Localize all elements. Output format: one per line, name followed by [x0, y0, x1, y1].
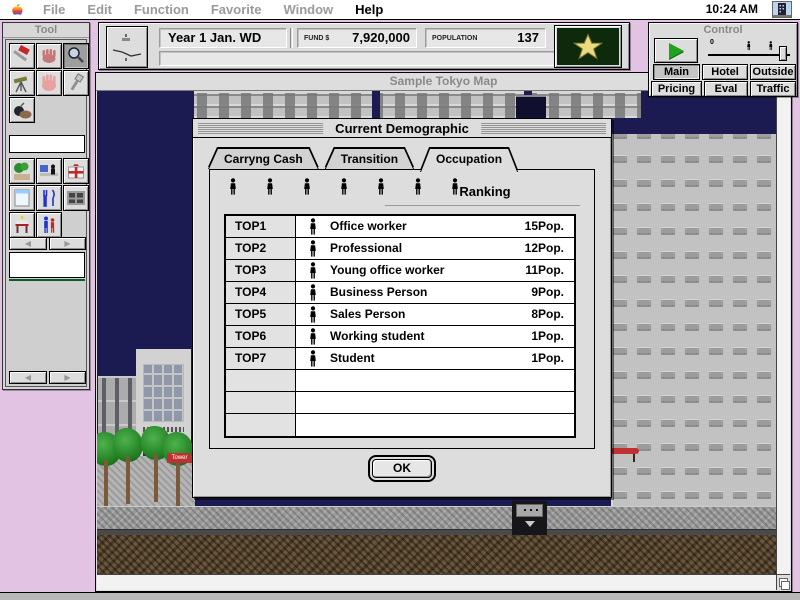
slider-track: [708, 54, 790, 56]
item-name-display: [9, 252, 85, 278]
dialog-title: Current Demographic: [323, 121, 481, 136]
zoom-tool-button[interactable]: [63, 43, 89, 69]
move-tool-button[interactable]: [36, 43, 62, 69]
item-restaurant-button[interactable]: [36, 185, 62, 211]
hazard-tool-button[interactable]: [9, 97, 35, 123]
item-plant-button[interactable]: [9, 158, 35, 184]
ranking-underline: [385, 205, 580, 206]
fund-graph-button[interactable]: [106, 26, 148, 68]
item-people-button[interactable]: [36, 212, 62, 238]
hand-tool-button[interactable]: [36, 70, 62, 96]
item-facade-button[interactable]: [63, 185, 89, 211]
default-button-ring: OK: [368, 455, 436, 482]
ok-button[interactable]: OK: [372, 459, 432, 478]
person-icon: [768, 41, 774, 50]
table-row: TOP4Business Person9Pop.: [226, 282, 574, 304]
person-icon: [308, 284, 318, 301]
person-icon: [308, 262, 318, 279]
bomb-icon: [11, 99, 33, 121]
application-menu-button[interactable]: [772, 1, 792, 18]
slider-handle[interactable]: [779, 46, 787, 61]
person-icon: [308, 306, 318, 323]
table-row: TOP2Professional12Pop.: [226, 238, 574, 260]
magnifier-icon: [65, 45, 87, 67]
glass-facade: [143, 364, 184, 422]
view-tool-button[interactable]: [9, 70, 35, 96]
axe-icon: [11, 45, 33, 67]
divider: [290, 28, 293, 48]
horizontal-scrollbar[interactable]: [97, 574, 776, 590]
office-icon: [38, 160, 60, 182]
palette-next-button[interactable]: ▶: [49, 371, 86, 384]
play-icon: [669, 43, 684, 59]
fork-knife-icon: [38, 187, 60, 209]
date-display: Year 1 Jan. WD: [159, 28, 287, 48]
person-icon: [308, 350, 318, 367]
population-value: 137: [477, 29, 545, 47]
tab-transition[interactable]: Transition: [326, 149, 413, 170]
traffic-button[interactable]: Traffic: [750, 81, 796, 97]
outside-button[interactable]: Outside: [750, 64, 796, 80]
tool-name-display: [9, 135, 85, 153]
hotel-button[interactable]: Hotel: [702, 64, 748, 80]
elevator-car: [516, 504, 543, 517]
sky-gap: [372, 91, 380, 118]
menu-favorite[interactable]: Favorite: [200, 0, 273, 19]
telescope-icon: [11, 72, 33, 94]
person-icon: [308, 218, 318, 235]
table-row-empty: [226, 414, 574, 436]
item-shop-button[interactable]: [63, 158, 89, 184]
item-page-prev-button[interactable]: ◀: [9, 237, 47, 250]
divider: [9, 279, 85, 281]
speed-slider: 0: [704, 38, 794, 63]
dialog-tabs: Carryng Cash Transition Occupation: [209, 149, 517, 170]
menu-function[interactable]: Function: [123, 0, 200, 19]
facade-icon: [65, 187, 87, 209]
item-page-next-button[interactable]: ▶: [49, 237, 86, 250]
vertical-scrollbar[interactable]: [776, 91, 790, 574]
menu-clock: 10:24 AM: [706, 0, 758, 19]
desktop: Sample Tokyo Map Tower: [0, 0, 800, 600]
tool-palette-title[interactable]: Tool: [3, 23, 89, 38]
rating-badge: [554, 25, 622, 68]
population-display: POPULATION 137: [425, 28, 546, 48]
person-icon: [228, 178, 238, 195]
tool-palette: Tool: [2, 22, 90, 390]
menu-file[interactable]: File: [32, 0, 76, 19]
item-diner-button[interactable]: [9, 212, 35, 238]
item-office-button[interactable]: [36, 158, 62, 184]
person-icon: [339, 178, 349, 195]
plant-icon: [11, 160, 33, 182]
map-window-title: Sample Tokyo Map: [390, 74, 498, 88]
control-panel: Control 0 Main Hotel Outside Pricing Eva…: [648, 22, 798, 97]
person-icon: [302, 178, 312, 195]
control-panel-title[interactable]: Control: [649, 24, 797, 36]
demolish-tool-button[interactable]: [9, 43, 35, 69]
window-icon: [11, 187, 33, 209]
tab-carryng-cash[interactable]: Carryng Cash: [209, 149, 318, 170]
window-resize-handle[interactable]: [776, 574, 790, 590]
dialog-titlebar[interactable]: Current Demographic: [193, 119, 611, 138]
fund-graph-icon: [110, 30, 144, 64]
tab-occupation[interactable]: Occupation: [421, 149, 517, 170]
message-bar: [159, 51, 596, 66]
table-row: TOP7Student1Pop.: [226, 348, 574, 370]
table-row: TOP1Office worker15Pop.: [226, 216, 574, 238]
tree: [163, 432, 193, 508]
person-icon: [746, 41, 752, 50]
gift-icon: [65, 160, 87, 182]
probe-tool-button[interactable]: [63, 70, 89, 96]
pricing-button[interactable]: Pricing: [651, 81, 702, 97]
population-label: POPULATION: [426, 29, 477, 47]
table-row-empty: [226, 392, 574, 414]
tower-app-icon: [773, 2, 791, 17]
elevator-shaft: [512, 501, 547, 535]
open-hand-icon: [38, 72, 60, 94]
status-toolbar: Year 1 Jan. WD FUND $ 7,920,000 POPULATI…: [98, 22, 630, 70]
apple-icon: [10, 2, 24, 18]
ranking-table: TOP1Office worker15Pop. TOP2Professional…: [224, 214, 576, 438]
apple-menu[interactable]: [10, 2, 24, 18]
elevator-down-arrow-icon: [525, 521, 535, 527]
play-button[interactable]: [654, 38, 698, 63]
people-icon: [38, 214, 60, 236]
slider-min-label: 0: [710, 39, 714, 46]
palette-prev-button[interactable]: ◀: [9, 371, 47, 384]
background-window-strip: [0, 592, 800, 600]
menu-edit[interactable]: Edit: [76, 0, 123, 19]
flashlight-icon: [65, 72, 87, 94]
table-row: TOP5Sales Person8Pop.: [226, 304, 574, 326]
underground-dirt: [97, 535, 776, 574]
person-icon: [308, 328, 318, 345]
main-button[interactable]: Main: [653, 64, 700, 80]
rooftop-block: [516, 95, 546, 118]
tower-floors: [194, 91, 641, 118]
table-row: TOP6Working student1Pop.: [226, 326, 574, 348]
menu-help[interactable]: Help: [344, 0, 394, 19]
star-icon: [573, 32, 603, 62]
tool-palette-body: ◀ ▶ ◀ ▶: [5, 39, 87, 387]
fund-value: 7,920,000: [329, 29, 416, 47]
current-demographic-dialog: Current Demographic Carryng Cash Transit…: [192, 118, 612, 498]
occupation-tab-panel: Ranking TOP1Office worker15Pop. TOP2Prof…: [209, 169, 595, 449]
menu-bar: File Edit Function Favorite Window Help …: [0, 0, 800, 20]
tree: [113, 428, 143, 504]
fund-display: FUND $ 7,920,000: [297, 28, 417, 48]
person-icon: [265, 178, 275, 195]
eval-button[interactable]: Eval: [704, 81, 748, 97]
street: [97, 506, 776, 529]
table-row: TOP3Young office worker11Pop.: [226, 260, 574, 282]
menu-window[interactable]: Window: [272, 0, 344, 19]
shop-awning: Tower: [167, 453, 192, 463]
item-window-button[interactable]: [9, 185, 35, 211]
ranking-heading: Ranking: [400, 184, 570, 199]
grab-hand-icon: [38, 45, 60, 67]
table-lamp-icon: [11, 214, 33, 236]
person-icon: [308, 240, 318, 257]
person-icon: [376, 178, 386, 195]
table-row-empty: [226, 370, 574, 392]
fund-label: FUND $: [298, 29, 329, 47]
